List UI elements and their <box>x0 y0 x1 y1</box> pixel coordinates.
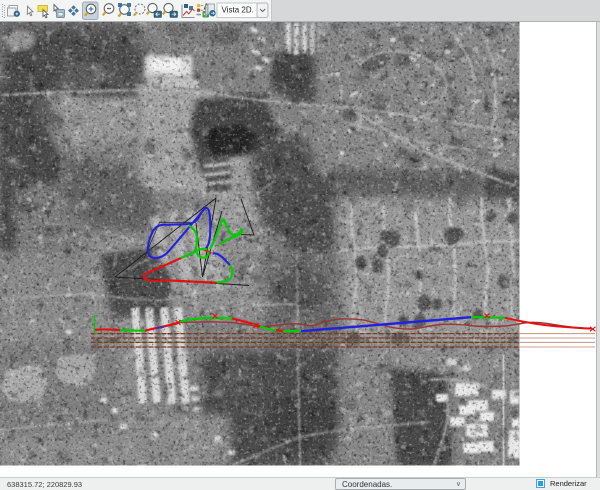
svg-text:Vista 2D.: Vista 2D. <box>222 6 254 15</box>
